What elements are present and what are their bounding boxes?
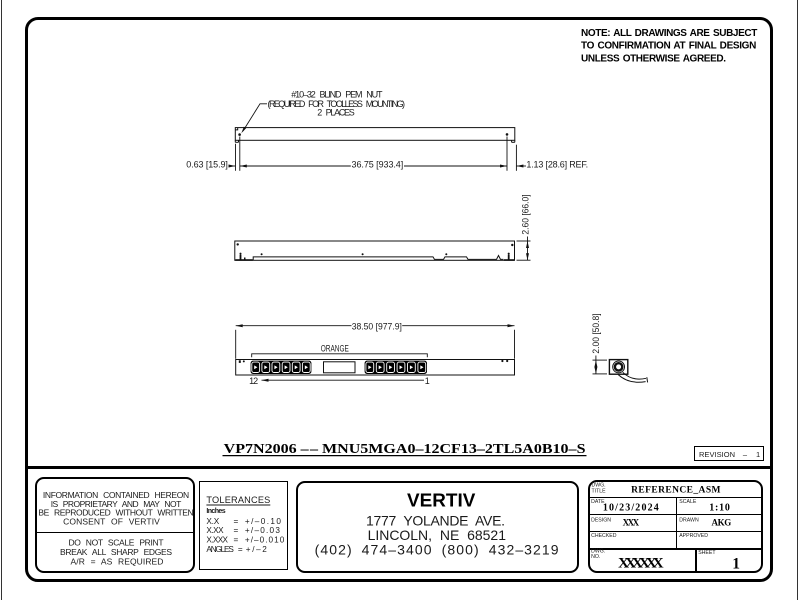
- svg-text:10/23/2024: 10/23/2024: [603, 502, 659, 513]
- svg-text:XXX: XXX: [623, 518, 640, 528]
- svg-text:Inches: Inches: [206, 508, 225, 515]
- svg-text:REVISION: REVISION: [699, 450, 735, 459]
- svg-text:+/–0.010: +/–0.010: [245, 535, 285, 544]
- svg-text:DESIGN: DESIGN: [591, 518, 611, 524]
- svg-text:2 PLACES: 2 PLACES: [317, 108, 355, 118]
- svg-text:NO.: NO.: [591, 554, 600, 560]
- svg-text:+/–0.10: +/–0.10: [245, 517, 281, 526]
- svg-text:0.63 [15.9]: 0.63 [15.9]: [186, 160, 228, 170]
- svg-text:ORANGE: ORANGE: [321, 343, 349, 353]
- svg-text:1: 1: [756, 450, 760, 459]
- svg-text:UNLESS OTHERWISE AGREED.: UNLESS OTHERWISE AGREED.: [581, 53, 726, 64]
- svg-text:VERTIV: VERTIV: [407, 490, 476, 511]
- svg-text:A/R = AS REQUIRED: A/R = AS REQUIRED: [71, 556, 164, 566]
- svg-text:CHECKED: CHECKED: [591, 533, 617, 539]
- svg-text:X.XXX: X.XXX: [206, 535, 228, 544]
- svg-text:2.00 [50.8]: 2.00 [50.8]: [591, 313, 601, 353]
- svg-text:(402) 474–3400 (800) 432–3219: (402) 474–3400 (800) 432–3219: [315, 542, 559, 558]
- svg-text:=: =: [238, 545, 243, 554]
- svg-text:36.75 [933.4]: 36.75 [933.4]: [352, 160, 404, 170]
- svg-text:DRAWN: DRAWN: [679, 518, 699, 524]
- svg-text:=: =: [234, 535, 239, 544]
- svg-text:1.13 [28.6] REF.: 1.13 [28.6] REF.: [526, 160, 588, 170]
- svg-text:–: –: [743, 450, 748, 459]
- svg-text:+/–2: +/–2: [246, 545, 267, 554]
- svg-text:2.60 [66.0]: 2.60 [66.0]: [521, 194, 531, 234]
- svg-text:12: 12: [249, 376, 258, 386]
- svg-text:1: 1: [425, 376, 430, 386]
- svg-text:1: 1: [732, 555, 740, 572]
- svg-text:+/–0.03: +/–0.03: [245, 526, 280, 535]
- svg-text:ANGLES: ANGLES: [206, 545, 234, 554]
- svg-text:=: =: [234, 526, 239, 535]
- svg-text:REFERENCE_ASM: REFERENCE_ASM: [631, 485, 720, 495]
- svg-text:APPROVED: APPROVED: [679, 533, 708, 539]
- svg-text:TITLE: TITLE: [592, 488, 607, 494]
- svg-text:SHEET: SHEET: [698, 550, 716, 556]
- svg-text:1:10: 1:10: [709, 502, 730, 513]
- svg-text:X.X: X.X: [206, 517, 219, 526]
- svg-text:XXXXXX: XXXXXX: [618, 556, 664, 572]
- svg-text:AKG: AKG: [712, 518, 732, 528]
- svg-text:=: =: [234, 517, 239, 526]
- svg-text:SCALE: SCALE: [679, 499, 697, 505]
- svg-text:X.XX: X.XX: [206, 526, 224, 535]
- svg-text:TOLERANCES: TOLERANCES: [206, 495, 270, 505]
- svg-text:CONSENT OF VERTIV: CONSENT OF VERTIV: [63, 516, 160, 526]
- svg-text:LINCOLN, NE 68521: LINCOLN, NE 68521: [368, 527, 507, 543]
- svg-text:38.50 [977.9]: 38.50 [977.9]: [352, 321, 402, 331]
- svg-text:TO CONFIRMATION AT FINAL DESIG: TO CONFIRMATION AT FINAL DESIGN: [581, 41, 756, 52]
- svg-text:NOTE: ALL DRAWINGS ARE SUBJECT: NOTE: ALL DRAWINGS ARE SUBJECT: [581, 28, 757, 39]
